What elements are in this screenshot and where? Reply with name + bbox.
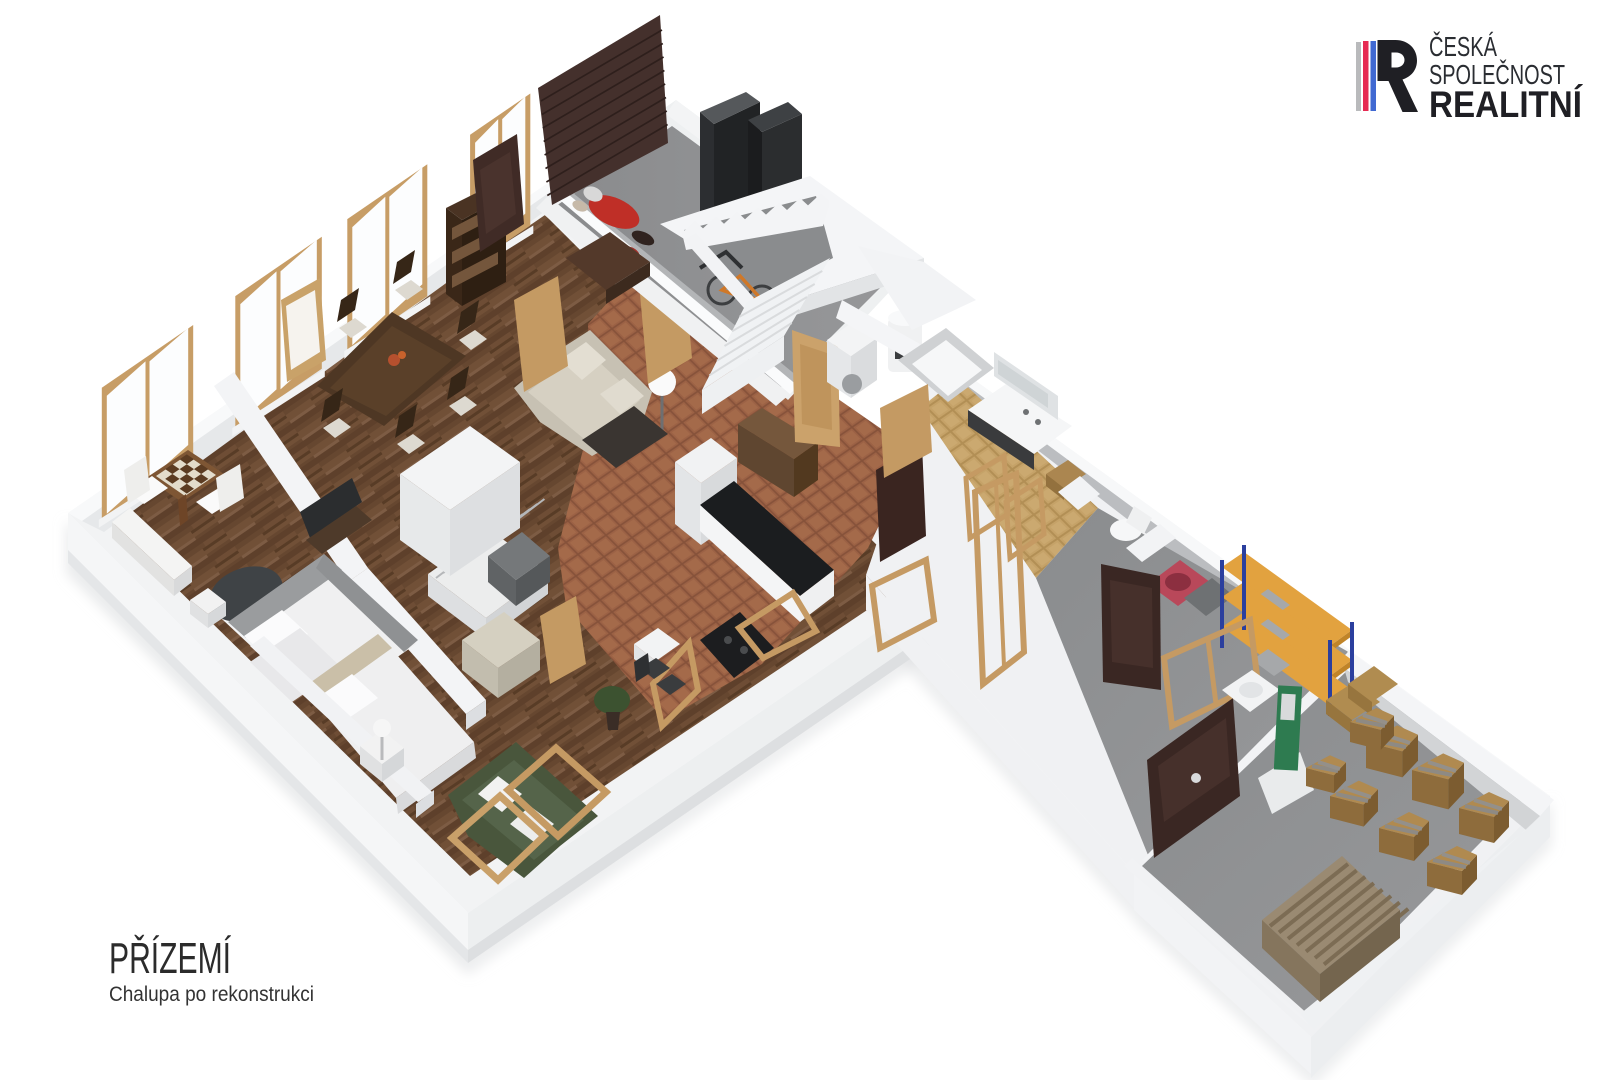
- svg-text:PŘÍZEMÍ: PŘÍZEMÍ: [109, 934, 232, 983]
- svg-text:Chalupa po rekonstrukci: Chalupa po rekonstrukci: [109, 983, 314, 1006]
- svg-text:ČESKÁ: ČESKÁ: [1429, 31, 1497, 62]
- svg-text:REALITNÍ: REALITNÍ: [1429, 84, 1584, 125]
